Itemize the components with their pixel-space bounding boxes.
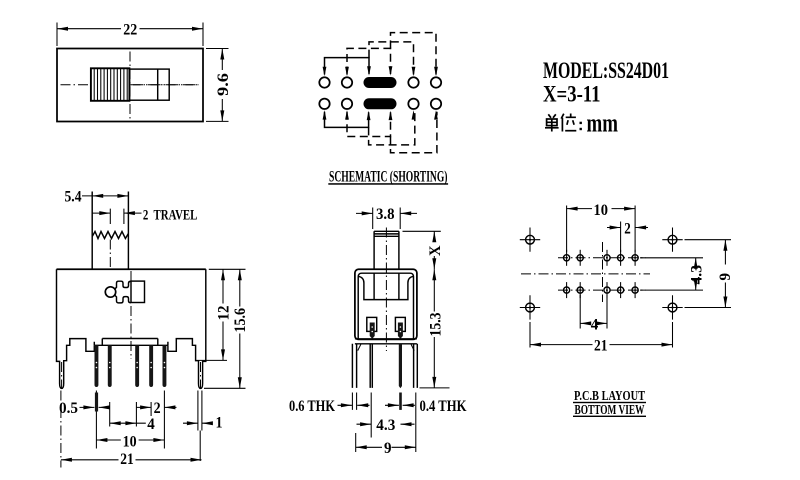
svg-text:4: 4 xyxy=(591,316,599,333)
svg-text:mm: mm xyxy=(587,109,619,138)
svg-text:X=3-11: X=3-11 xyxy=(543,82,601,107)
svg-text:0.6 THK: 0.6 THK xyxy=(289,398,335,415)
svg-text:15.6: 15.6 xyxy=(232,308,249,333)
svg-text:4: 4 xyxy=(147,416,155,433)
svg-text:21: 21 xyxy=(120,451,134,468)
svg-text:4.3: 4.3 xyxy=(376,417,395,434)
svg-text:MODEL:SS24D01: MODEL:SS24D01 xyxy=(543,58,669,83)
svg-text:5.4: 5.4 xyxy=(65,188,82,205)
svg-text:2 TRAVEL: 2 TRAVEL xyxy=(143,207,198,223)
svg-text:0.5: 0.5 xyxy=(59,400,78,417)
svg-text:9: 9 xyxy=(384,440,392,457)
svg-text:2: 2 xyxy=(154,400,161,417)
svg-text:BOTTOM VIEW: BOTTOM VIEW xyxy=(575,402,645,417)
svg-text:22: 22 xyxy=(123,22,137,39)
svg-text:SCHEMATIC (SHORTING): SCHEMATIC (SHORTING) xyxy=(329,168,448,185)
svg-text:12: 12 xyxy=(215,305,232,320)
svg-text:10: 10 xyxy=(594,202,609,219)
svg-text:15.3: 15.3 xyxy=(427,312,444,336)
svg-text:1: 1 xyxy=(216,415,223,432)
svg-text:2: 2 xyxy=(624,220,631,237)
svg-text:10: 10 xyxy=(123,434,137,451)
svg-text:4.3: 4.3 xyxy=(689,265,706,285)
svg-text:21: 21 xyxy=(594,338,608,355)
svg-text:3.8: 3.8 xyxy=(376,206,395,223)
svg-text:9.6: 9.6 xyxy=(215,73,232,96)
svg-text:P.C.B LAYOUT: P.C.B LAYOUT xyxy=(574,388,645,403)
svg-text:9: 9 xyxy=(717,273,734,281)
svg-text:0.4 THK: 0.4 THK xyxy=(420,398,467,415)
svg-text:X: X xyxy=(427,245,444,256)
